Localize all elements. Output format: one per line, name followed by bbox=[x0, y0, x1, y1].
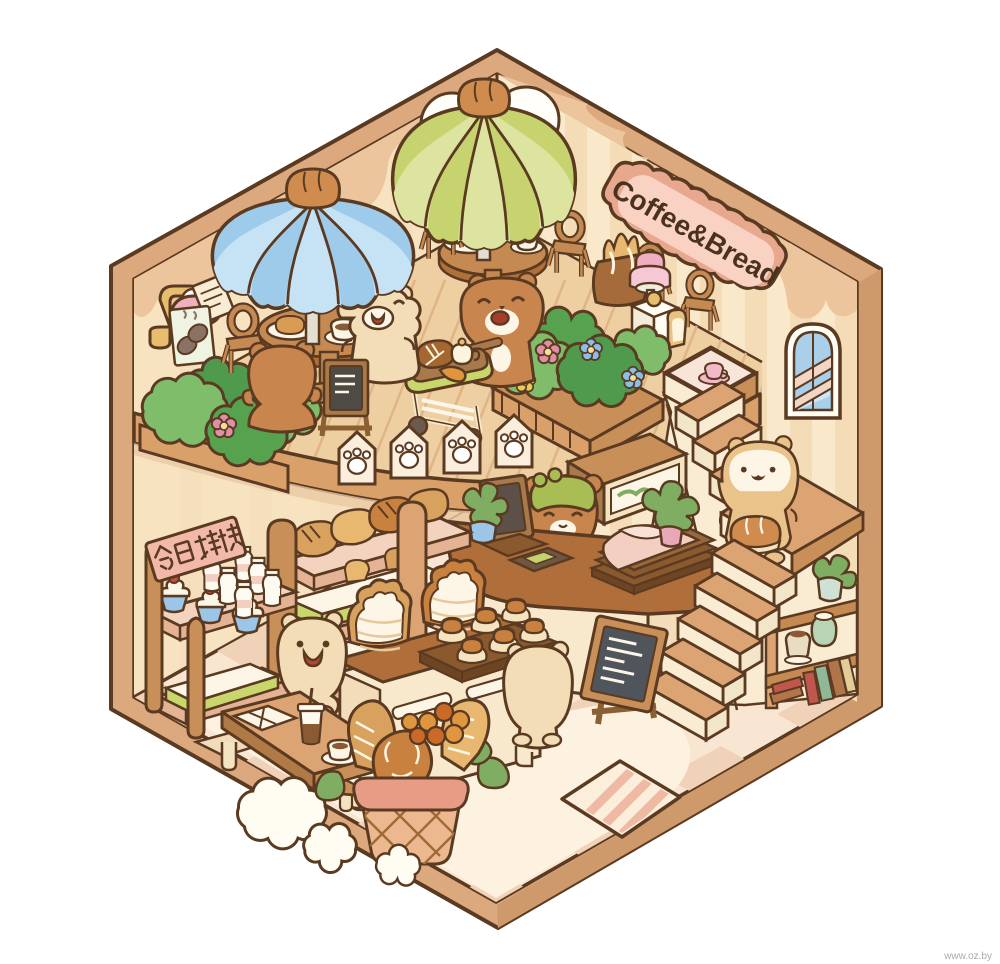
svg-text:www.oz.by: www.oz.by bbox=[943, 951, 992, 962]
